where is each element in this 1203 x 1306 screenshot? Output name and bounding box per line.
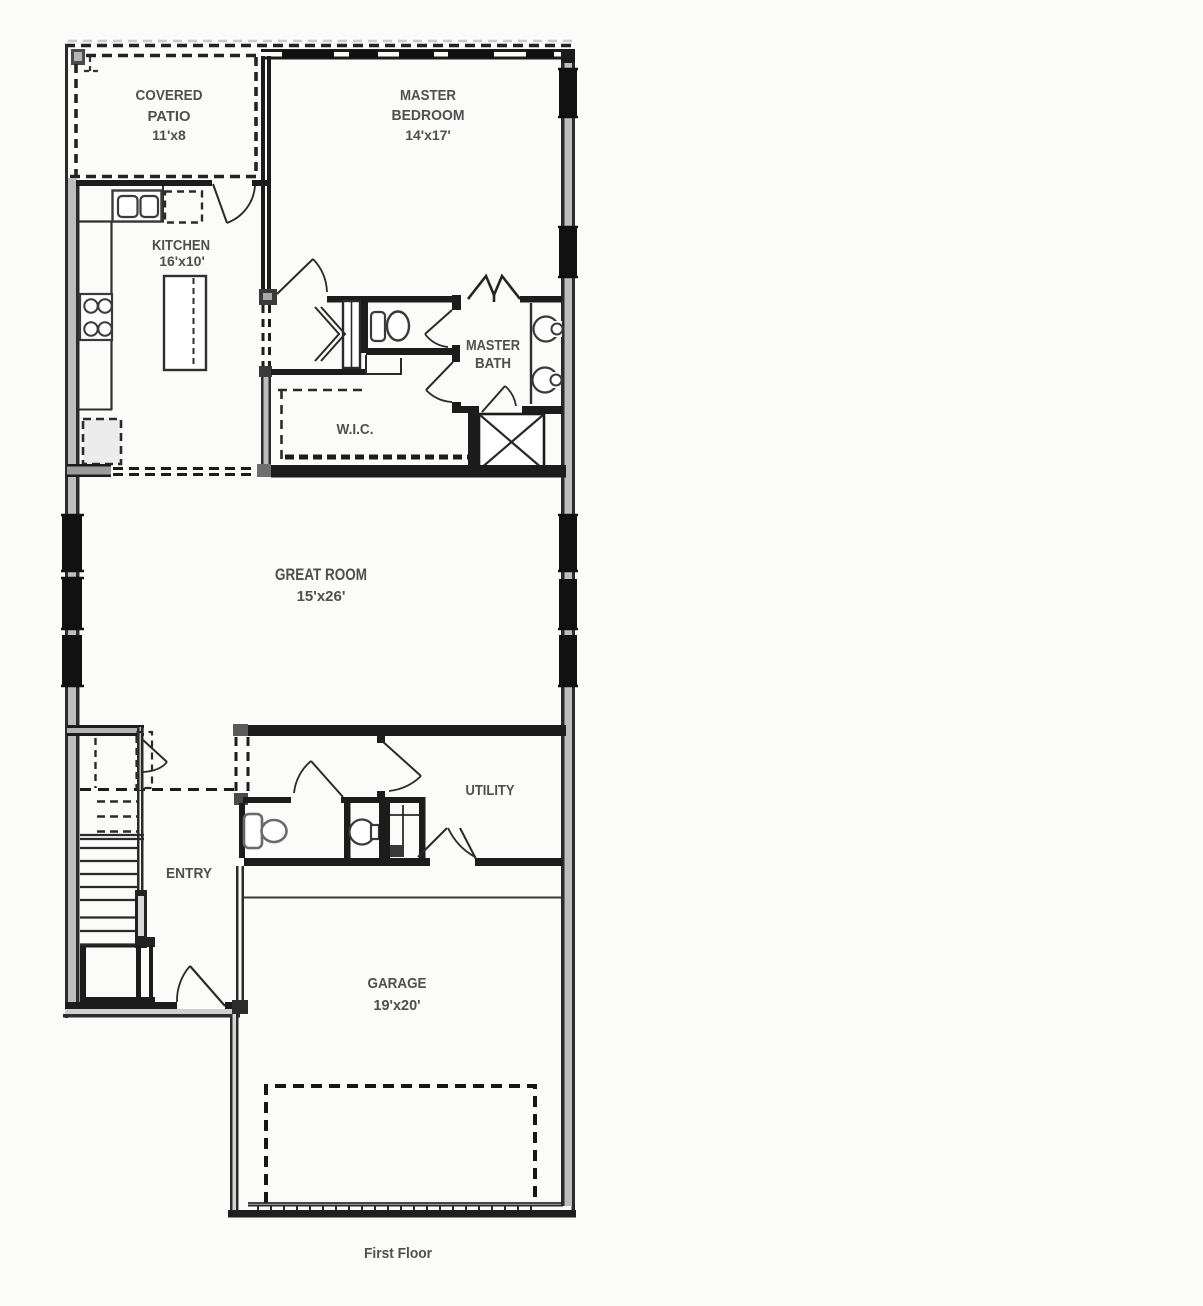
- svg-text:MASTER: MASTER: [466, 338, 520, 354]
- svg-text:16'x10': 16'x10': [159, 253, 205, 269]
- svg-text:11'x8: 11'x8: [152, 127, 186, 143]
- svg-text:BEDROOM: BEDROOM: [392, 107, 465, 124]
- svg-text:15'x26': 15'x26': [297, 588, 346, 605]
- svg-text:PATIO: PATIO: [148, 109, 191, 125]
- svg-text:W.I.C.: W.I.C.: [337, 422, 374, 438]
- svg-text:19'x20': 19'x20': [373, 998, 420, 1014]
- svg-text:UTILITY: UTILITY: [466, 783, 515, 799]
- svg-text:KITCHEN: KITCHEN: [152, 238, 210, 254]
- svg-text:First Floor: First Floor: [364, 1245, 432, 1262]
- svg-text:14'x17': 14'x17': [405, 127, 451, 143]
- svg-text:GREAT ROOM: GREAT ROOM: [275, 566, 367, 584]
- svg-text:COVERED: COVERED: [136, 88, 203, 104]
- svg-text:ENTRY: ENTRY: [166, 866, 212, 882]
- svg-text:MASTER: MASTER: [400, 87, 456, 104]
- svg-text:BATH: BATH: [475, 356, 511, 372]
- svg-text:GARAGE: GARAGE: [368, 975, 427, 992]
